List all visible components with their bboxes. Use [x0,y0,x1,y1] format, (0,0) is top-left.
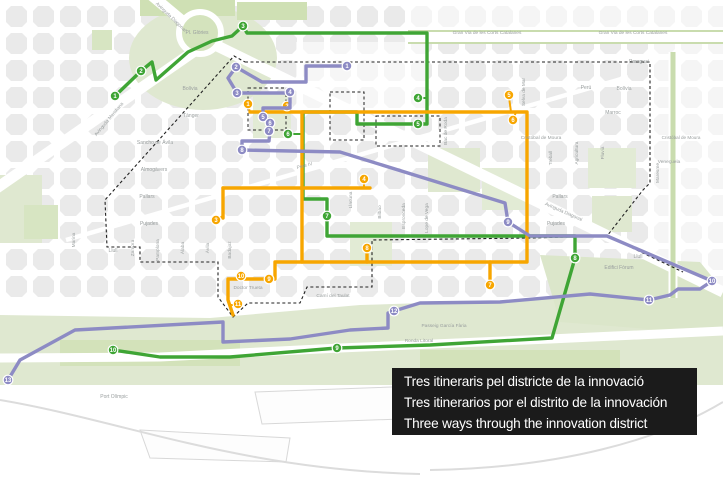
street-label: Gran Via de les Corts Catalanes [599,30,668,36]
street-label: Treball [548,151,554,165]
svg-text:11: 11 [646,298,653,304]
street-label: Lope de Vega [424,203,430,233]
purple-route-marker-7: 7 [264,126,274,136]
green-route-marker-8: 8 [570,253,580,263]
orange-route-marker-3: 3 [211,215,221,225]
street-label: Bac de Roda [443,117,449,145]
street-label: Sancho de Ávila [137,139,173,146]
title-line-english: Three ways through the innovation distri… [404,413,697,434]
green-route-marker-2: 2 [136,66,146,76]
street-label: Ronda Litoral [405,338,434,344]
street-label: Edifici Fòrum [604,265,633,271]
street-label: Agricultura [574,141,580,164]
svg-text:10: 10 [110,348,117,354]
street-label: Perú [581,85,592,91]
street-label: Llull [109,248,118,254]
orange-route-marker-10: 10 [236,271,246,281]
purple-route-marker-8: 8 [237,145,247,155]
orange-route-marker-1: 1 [243,99,253,109]
street-label: Almogàvers [141,167,168,173]
street-label: Àvila [204,242,211,253]
green-route-marker-7: 7 [322,211,332,221]
green-route-marker-5: 5 [413,119,423,129]
purple-route-marker-2: 2 [231,62,241,72]
street-label: Marina [71,232,77,247]
green-route-marker-3: 3 [238,21,248,31]
street-label: Bilbao [377,205,383,219]
svg-text:10: 10 [238,274,245,280]
green-route-marker-1: 1 [110,91,120,101]
street-label: Cristóbal de Moura [521,135,562,141]
street-label: Passeig García Fària [421,323,466,329]
orange-route-marker-7: 7 [485,280,495,290]
street-label: Pamplona [155,239,161,261]
street-label: Doctor Trueta [233,285,262,291]
orange-route-marker-5: 5 [504,90,514,100]
purple-route-marker-13: 13 [3,375,13,385]
street-label: Zamora [130,239,136,256]
street-label: Llull [634,254,643,260]
street-label: Pujades [547,221,566,227]
svg-text:10: 10 [709,279,716,285]
svg-text:12: 12 [391,309,398,315]
street-label: Selva de Mar [521,77,527,106]
green-route-marker-6: 6 [283,129,293,139]
green-route-marker-10: 10 [108,345,118,355]
street-label: Bolívia [182,86,197,92]
purple-route-marker-10: 10 [707,276,717,286]
street-label: Llacuna [348,191,354,208]
street-label: Pallars [552,194,568,200]
street-label: Veneçuela [658,159,681,165]
street-label: Badajoz [227,241,233,259]
street-label: Pallars [139,194,155,200]
street-label: Maresme [655,163,661,183]
orange-route-marker-11: 11 [233,299,243,309]
orange-route-marker-4: 4 [359,174,369,184]
purple-route-marker-4: 4 [285,87,295,97]
street-label: Àlaba [179,242,186,255]
title-line-spanish: Tres itinerarios por el distrito de la i… [404,392,697,413]
street-label: Tànger [183,113,199,119]
street-label: Port Olímpic [100,394,128,400]
purple-route-marker-9: 9 [503,217,513,227]
title-line-catalan: Tres itineraris pel districte de la inno… [404,371,697,392]
street-label: Pl. Glòries [185,30,209,36]
orange-route-marker-6: 6 [508,115,518,125]
purple-route-marker-12: 12 [389,306,399,316]
purple-route-marker-1: 1 [342,61,352,71]
street-label: Marroc [605,110,621,116]
street-label: Camí del Taulat [316,293,350,299]
orange-route-marker-8: 8 [362,243,372,253]
map-page: 1234567891012345678910111234567891011121… [0,0,723,482]
green-route-marker-9: 9 [332,343,342,353]
street-label: Cristóbal de Moura [662,135,701,140]
street-label: Fluvià [600,146,606,159]
green-route-marker-4: 4 [413,93,423,103]
svg-text:13: 13 [5,378,12,384]
street-label: Bolívia [616,86,631,92]
street-label: Pujades [140,221,159,227]
street-label: Gran Via de les Corts Catalanes [453,30,522,36]
street-label: Espronceda [401,203,407,229]
street-label: Paraguai [629,59,649,65]
purple-route-marker-11: 11 [644,295,654,305]
orange-route-marker-9: 9 [264,274,274,284]
svg-text:11: 11 [235,302,242,308]
title-box: Tres itineraris pel districte de la inno… [392,368,697,435]
purple-route-marker-3: 3 [232,88,242,98]
